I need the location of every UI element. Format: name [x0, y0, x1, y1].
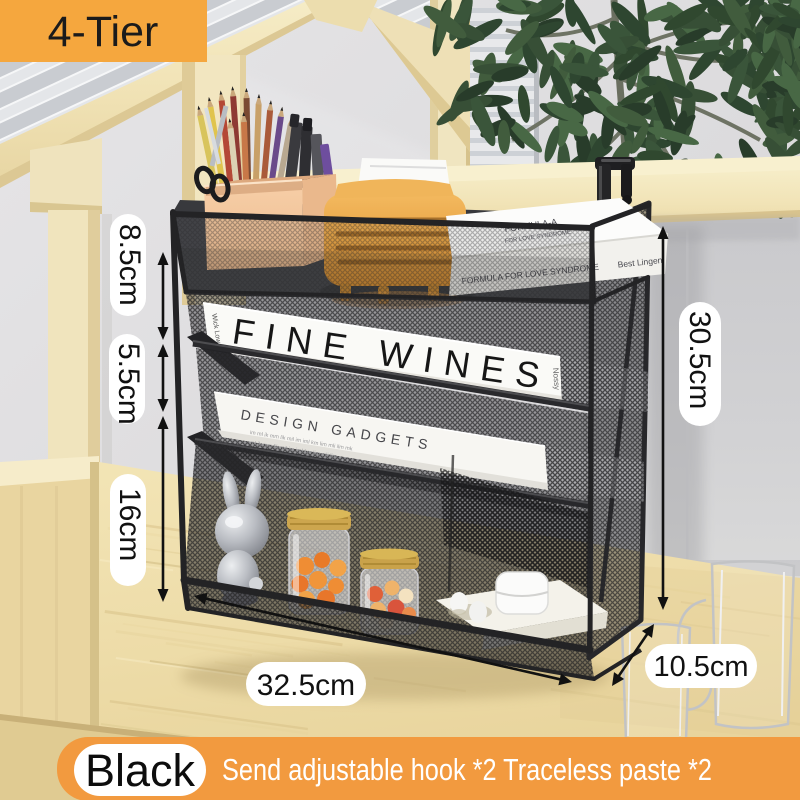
svg-text:30.5cm: 30.5cm: [683, 311, 716, 409]
svg-text:4-Tier: 4-Tier: [48, 8, 159, 56]
svg-text:Nossy: Nossy: [551, 368, 562, 391]
svg-text:8.5cm: 8.5cm: [113, 224, 146, 306]
svg-text:Send adjustable hook *2 Tracel: Send adjustable hook *2 Traceless paste …: [222, 752, 712, 787]
svg-text:Black: Black: [85, 745, 196, 796]
svg-text:5.5cm: 5.5cm: [112, 343, 145, 425]
svg-text:16cm: 16cm: [113, 488, 146, 561]
svg-text:32.5cm: 32.5cm: [257, 669, 355, 702]
svg-text:10.5cm: 10.5cm: [653, 651, 748, 683]
